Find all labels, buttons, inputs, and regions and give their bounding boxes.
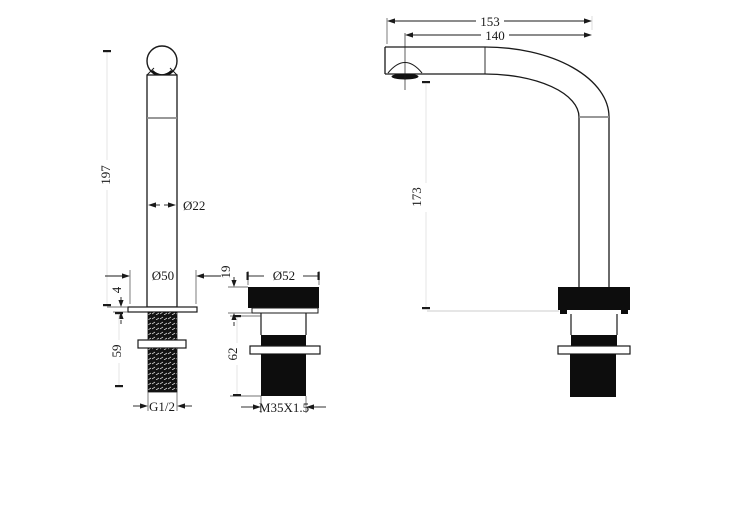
dim-153-label: 153: [480, 14, 500, 29]
body-lock-nut: [250, 346, 320, 354]
dim-59-label: 59: [109, 345, 124, 358]
dim-62-label: 62: [225, 348, 240, 361]
dim-19-label: 19: [218, 266, 233, 279]
faucet-drawing: 197 Ø22 Ø50 4: [0, 0, 734, 527]
handle-front-view: 197 Ø22 Ø50 4: [98, 46, 221, 414]
handle-deck-flange: [128, 307, 197, 312]
dim-d52-label: Ø52: [273, 268, 295, 283]
dim-body-diameter: Ø52: [247, 268, 320, 285]
handle-knob: [147, 46, 177, 76]
dim-d22-label: Ø22: [183, 198, 205, 213]
body-flange: [252, 308, 318, 313]
dim-140-label: 140: [485, 28, 505, 43]
spout-outline: [385, 47, 609, 287]
dim-body-under-length: 62: [225, 315, 261, 396]
dim-handle-height: 197: [98, 50, 113, 306]
dim-d50-label: Ø50: [152, 268, 174, 283]
aerator: [388, 33, 422, 90]
dim-handle-thread: G1/2: [133, 392, 192, 414]
technical-drawing-canvas: 197 Ø22 Ø50 4: [0, 0, 734, 527]
body-collar: [261, 335, 306, 346]
valve-body-view: 19 Ø52 62: [218, 266, 326, 416]
dim-body-thread: M35X1.5: [241, 396, 326, 415]
handle-lock-nut: [138, 340, 186, 348]
base-threaded-shank: [570, 354, 616, 397]
dim-4-label: 4: [109, 286, 124, 293]
dim-m35-label: M35X1.5: [259, 400, 309, 415]
dim-aerator-reach: 140: [405, 28, 592, 43]
base-lock-nut: [558, 346, 630, 354]
dim-173-label: 173: [409, 187, 424, 207]
body-neck: [261, 313, 306, 335]
handle-threaded-shank: [148, 312, 177, 392]
base-foot-right: [621, 310, 628, 314]
spout-side-view: 153 140 173: [385, 14, 630, 397]
body-top-cylinder: [248, 287, 319, 308]
body-threaded-shank: [261, 354, 306, 396]
dim-g12-label: G1/2: [149, 399, 175, 414]
dim-spout-height: 173: [409, 81, 430, 309]
dim-shank-length: 59: [109, 312, 124, 387]
spout-base: [558, 287, 630, 397]
base-neck: [571, 314, 617, 335]
base-foot-left: [560, 310, 567, 314]
base-top-cylinder: [558, 287, 630, 310]
base-collar: [571, 335, 617, 346]
dim-197-label: 197: [98, 165, 113, 185]
